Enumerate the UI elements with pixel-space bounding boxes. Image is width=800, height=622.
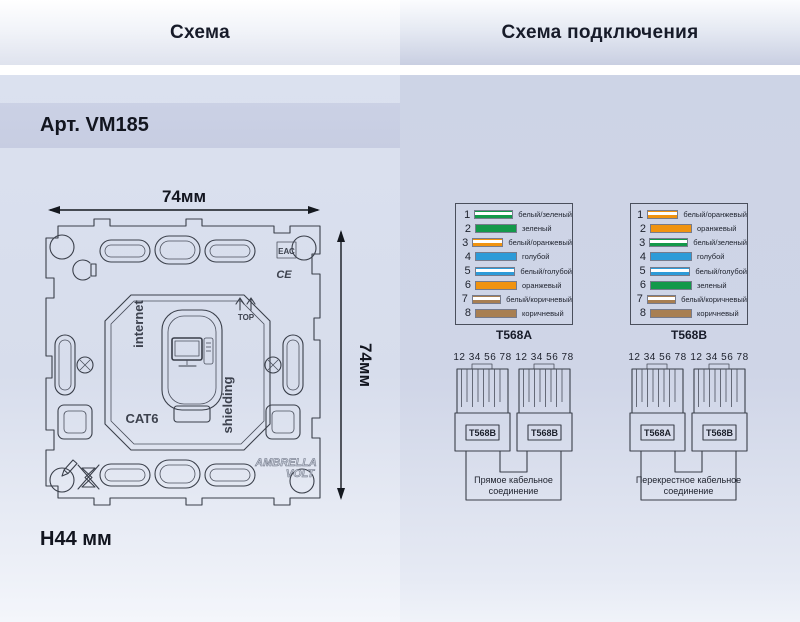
rj45-connector-left: T568B (455, 364, 510, 451)
rj45-connector-left: T568A (630, 364, 685, 451)
wire-color-bar (651, 268, 690, 275)
wire-label: голубой (522, 252, 549, 261)
top-label: TOP (238, 313, 255, 322)
wire-color-bar (473, 239, 502, 246)
wire-label: белый/голубой (520, 267, 572, 276)
cat6-label: CAT6 (126, 411, 159, 426)
brand-logo: AMBRELLA VOLT (254, 457, 317, 480)
connector-standard-label: T568A (644, 428, 672, 438)
pin-numbers: 12 34 56 78 (453, 352, 511, 363)
rotation-detail (73, 260, 96, 280)
wire-color-bar (650, 239, 687, 246)
wire-number: 4 (461, 251, 471, 263)
wire-number: 3 (461, 237, 468, 249)
connector-standard-label: T568B (531, 428, 559, 438)
eac-mark: ЕАС (277, 242, 296, 258)
wire-row: 3 белый/оранжевый (461, 236, 572, 249)
inner-cable-line (675, 451, 702, 472)
wire-row: 4 голубой (636, 250, 747, 263)
brand-line2: VOLT (286, 468, 316, 480)
depth-dimension-label: Н44 мм (40, 528, 112, 551)
header-divider (0, 65, 800, 75)
rj45-connector-right: T568B (517, 364, 572, 451)
height-dimension-label: 74мм (356, 343, 375, 387)
internet-label: internet (131, 299, 146, 347)
wire-label: белый/коричневый (681, 295, 747, 304)
straight-cable-diagram: 12 34 56 78 12 34 56 78 T568B (440, 345, 587, 507)
wire-row: 7 белый/коричневый (461, 293, 572, 306)
wire-color-bar (476, 253, 516, 260)
wire-label: оранжевый (697, 224, 736, 233)
connector-standard-label: T568B (706, 428, 734, 438)
wire-number: 5 (461, 265, 471, 277)
side-slots (55, 335, 303, 439)
wire-number: 5 (636, 265, 646, 277)
wire-label: белый/оранжевый (683, 210, 747, 219)
wire-color-bar (476, 225, 516, 232)
wire-label: коричневый (697, 309, 739, 318)
pinout-caption-t568a: T568A (455, 328, 573, 342)
pin-numbers: 12 34 56 78 (515, 352, 573, 363)
wire-number: 4 (636, 251, 646, 263)
pin-numbers: 12 34 56 78 (690, 352, 748, 363)
wire-row: 2 оранжевый (636, 222, 747, 235)
page: Схема Схема подключения Арт. VM185 74мм … (0, 0, 800, 622)
top-claw-slots (100, 236, 255, 264)
wire-number: 1 (636, 209, 643, 221)
height-dimension: 74мм (337, 230, 375, 500)
wire-number: 3 (636, 237, 645, 249)
inner-cable-line (500, 451, 527, 472)
wire-row: 6 зеленый (636, 279, 747, 292)
wire-row: 1 белый/зеленый (461, 208, 572, 221)
cable-caption: Прямое кабельное соединение (450, 475, 577, 497)
wire-color-bar (475, 211, 512, 218)
wire-color-bar (648, 296, 675, 303)
width-dimension-label: 74мм (162, 187, 206, 206)
wire-row: 2 зеленый (461, 222, 572, 235)
wire-label: голубой (697, 252, 724, 261)
wire-label: белый/оранжевый (508, 238, 572, 247)
wire-label: зеленый (697, 281, 727, 290)
pinout-table-t568b: 1 белый/оранжевый 2 оранжевый 3 белый/зе… (630, 203, 748, 325)
wire-color-bar (476, 310, 516, 317)
left-panel-title: Схема (170, 22, 230, 44)
header-left: Схема (0, 0, 400, 65)
wire-color-bar (651, 282, 691, 289)
wire-number: 2 (461, 223, 471, 235)
pin-numbers: 12 34 56 78 (628, 352, 686, 363)
mechanism-drawing: 74мм 74мм (38, 178, 383, 508)
shielding-label: shielding (220, 376, 235, 433)
wire-color-bar (651, 310, 691, 317)
wire-number: 7 (461, 293, 468, 305)
wire-label: коричневый (522, 309, 564, 318)
wire-number: 8 (461, 307, 471, 319)
wire-row: 8 коричневый (461, 307, 572, 320)
crossover-cable-diagram: 12 34 56 78 12 34 56 78 T568A (615, 345, 762, 507)
wire-row: 6 оранжевый (461, 279, 572, 292)
wire-color-bar (476, 282, 516, 289)
wire-number: 2 (636, 223, 646, 235)
width-dimension: 74мм (48, 187, 320, 214)
article-number: Арт. VM185 (40, 114, 149, 137)
wire-label: белый/зеленый (693, 238, 747, 247)
wire-row: 5 белый/голубой (461, 265, 572, 278)
ce-mark: CE (276, 269, 292, 281)
monitor-icon (172, 338, 213, 366)
wire-label: белый/коричневый (506, 295, 572, 304)
wire-row: 8 коричневый (636, 307, 747, 320)
do-not-dispose-icon (78, 465, 99, 489)
wire-row: 1 белый/оранжевый (636, 208, 747, 221)
wire-number: 6 (636, 279, 646, 291)
wire-color-bar (473, 296, 500, 303)
wire-label: белый/голубой (695, 267, 747, 276)
top-orientation-mark: TOP (236, 298, 255, 322)
wire-number: 7 (636, 293, 643, 305)
wire-row: 3 белый/зеленый (636, 236, 747, 249)
wire-label: оранжевый (522, 281, 561, 290)
wire-row: 5 белый/голубой (636, 265, 747, 278)
header-right: Схема подключения (400, 0, 800, 65)
pinout-table-t568a: 1 белый/зеленый 2 зеленый 3 белый/оранже… (455, 203, 573, 325)
pinout-caption-t568b: T568B (630, 328, 748, 342)
wire-number: 1 (461, 209, 470, 221)
wire-row: 7 белый/коричневый (636, 293, 747, 306)
wire-color-bar (651, 225, 691, 232)
wire-number: 6 (461, 279, 471, 291)
cable-caption: Перекрестное кабельное соединение (625, 475, 752, 497)
wire-color-bar (476, 268, 515, 275)
wire-row: 4 голубой (461, 250, 572, 263)
bottom-claw-slots (100, 460, 255, 488)
connector-standard-label: T568B (469, 428, 497, 438)
right-panel-title: Схема подключения (502, 22, 699, 44)
rj45-connector-right: T568B (692, 364, 747, 451)
wire-number: 8 (636, 307, 646, 319)
wire-label: белый/зеленый (518, 210, 572, 219)
wire-color-bar (651, 253, 691, 260)
wire-label: зеленый (522, 224, 552, 233)
wire-color-bar (648, 211, 677, 218)
article-band: Арт. VM185 (0, 103, 400, 148)
eac-label: ЕАС (278, 247, 295, 256)
